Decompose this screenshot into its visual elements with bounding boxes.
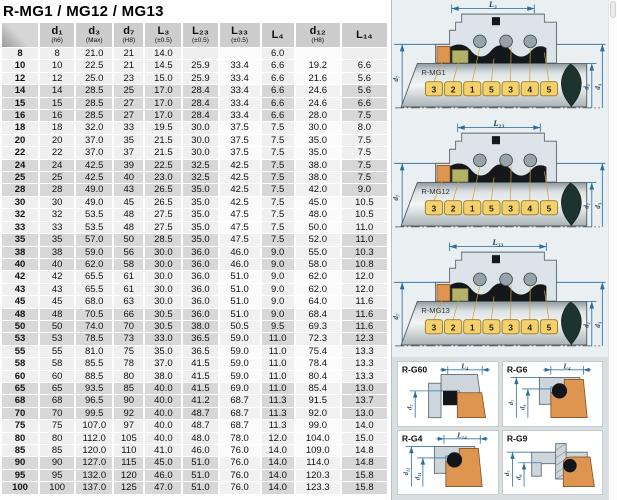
table-cell: 7.5 bbox=[342, 147, 387, 158]
table-cell: 41.0 bbox=[145, 445, 181, 456]
card-r-g6: R-G6 L₄ d₇ d₆ bbox=[502, 361, 604, 427]
part-number: 1 bbox=[470, 203, 475, 213]
table-cell: 17.0 bbox=[145, 98, 181, 109]
table-cell: 41.5 bbox=[183, 383, 217, 394]
table-cell: 115 bbox=[114, 457, 143, 468]
table-cell: 33.4 bbox=[220, 98, 260, 109]
table-cell: 35.0 bbox=[183, 222, 217, 233]
table-cell: 41.5 bbox=[183, 371, 217, 382]
dim-d1-label: d₁ bbox=[583, 322, 591, 328]
card-label: R-G6 bbox=[506, 365, 527, 375]
table-cell: 30.0 bbox=[145, 259, 181, 270]
table-cell: 78.4 bbox=[296, 358, 340, 369]
table-cell: 11.6 bbox=[342, 321, 387, 332]
table-cell: 13.0 bbox=[342, 383, 387, 394]
card-label: R-G9 bbox=[506, 433, 527, 443]
table-row: 585885.57837.041.559.011.078.413.3 bbox=[2, 358, 387, 369]
table-cell: 120.3 bbox=[296, 470, 340, 481]
diagram-r-mg1: d₇ L₃ R-MG1 3 2 1 5 3 4 5 d₁ d₃ bbox=[392, 0, 608, 119]
table-cell: 53.5 bbox=[76, 209, 112, 220]
o-ring bbox=[447, 452, 462, 467]
table-row: 8821.02114.06.0 bbox=[2, 48, 387, 59]
table-cell: 11.3 bbox=[262, 408, 294, 419]
dim-d1-label: d₁ bbox=[583, 84, 591, 90]
table-cell: 28 bbox=[40, 184, 74, 195]
table-cell: 33.4 bbox=[220, 85, 260, 96]
table-cell: 9.0 bbox=[262, 271, 294, 282]
dim-L14-label: L₁₄ bbox=[456, 431, 467, 439]
table-cell: 12 bbox=[2, 73, 38, 84]
table-cell: 12.0 bbox=[342, 284, 387, 295]
table-cell: 45 bbox=[114, 197, 143, 208]
table-cell: 76.0 bbox=[220, 457, 260, 468]
table-row: 323253.54827.535.047.57.548.010.5 bbox=[2, 209, 387, 220]
table-cell: 24.6 bbox=[296, 98, 340, 109]
table-cell: 65 bbox=[40, 383, 74, 394]
table-cell: 95 bbox=[40, 470, 74, 481]
table-cell: 25 bbox=[40, 172, 74, 183]
table-cell: 48.0 bbox=[183, 433, 217, 444]
table-cell: 59.0 bbox=[220, 371, 260, 382]
diagram-r-mg12: d₇ L₂₃ R-MG12 3 2 1 5 3 4 5 d₁ d₃ bbox=[392, 119, 608, 238]
table-cell: 14.0 bbox=[262, 482, 294, 493]
table-cell: 97 bbox=[114, 420, 143, 431]
table-cell: 37 bbox=[114, 147, 143, 158]
table-cell: 8 bbox=[40, 48, 74, 59]
header-d1: d₁(h6) bbox=[40, 23, 74, 47]
table-cell: 68.7 bbox=[220, 395, 260, 406]
table-cell: 30.0 bbox=[183, 122, 217, 133]
table-row: 656593.58540.041.569.011.085.413.0 bbox=[2, 383, 387, 394]
table-cell: 49.0 bbox=[76, 184, 112, 195]
seal-face-part bbox=[452, 169, 468, 182]
table-cell: 53.5 bbox=[76, 222, 112, 233]
table-cell: 28.5 bbox=[76, 110, 112, 121]
table-cell: 7.5 bbox=[262, 234, 294, 245]
dim-d12-label: d₁₂ bbox=[403, 467, 410, 475]
table-cell: 21.5 bbox=[145, 147, 181, 158]
table-cell: 80 bbox=[2, 433, 38, 444]
table-cell: 11.0 bbox=[262, 346, 294, 357]
header-L4: L₄ bbox=[262, 23, 294, 47]
table-cell: 40 bbox=[40, 259, 74, 270]
table-cell: 27.5 bbox=[145, 222, 181, 233]
table-cell: 66 bbox=[114, 309, 143, 320]
table-cell: 47.5 bbox=[220, 234, 260, 245]
card-r-g4: R-G4 L₁₄ d₁₂ d₁₁ bbox=[397, 430, 499, 496]
table-cell: 55 bbox=[40, 346, 74, 357]
set-screw bbox=[492, 255, 500, 263]
table-cell: 14.5 bbox=[145, 60, 181, 71]
table-cell: 58 bbox=[2, 358, 38, 369]
table-cell: 90 bbox=[2, 457, 38, 468]
part-number: 1 bbox=[470, 84, 475, 94]
dim-length-label: L₃₃ bbox=[491, 238, 503, 247]
spring bbox=[524, 154, 537, 167]
table-cell: 35.0 bbox=[183, 234, 217, 245]
part-number: 5 bbox=[547, 203, 552, 213]
table-row: 8080112.010540.048.078.012.0104.015.0 bbox=[2, 433, 387, 444]
table-cell: 6.6 bbox=[262, 60, 294, 71]
table-cell: 21.0 bbox=[76, 48, 112, 59]
table-cell bbox=[296, 48, 340, 59]
table-cell: 17.0 bbox=[145, 110, 181, 121]
table-cell: 11.3 bbox=[262, 395, 294, 406]
table-cell: 28 bbox=[2, 184, 38, 195]
table-cell: 51.0 bbox=[220, 271, 260, 282]
table-cell: 65.5 bbox=[76, 284, 112, 295]
table-cell: 7.5 bbox=[262, 184, 294, 195]
table-cell: 17.0 bbox=[145, 85, 181, 96]
table-cell: 10.8 bbox=[342, 259, 387, 270]
table-cell: 70 bbox=[40, 408, 74, 419]
table-cell: 32.5 bbox=[183, 160, 217, 171]
table-cell: 40.0 bbox=[145, 408, 181, 419]
table-cell: 55 bbox=[2, 346, 38, 357]
table-cell: 40 bbox=[114, 172, 143, 183]
diagram-label: R-MG12 bbox=[421, 187, 450, 196]
table-cell: 12.0 bbox=[262, 433, 294, 444]
table-cell: 22 bbox=[2, 147, 38, 158]
table-cell: 64.0 bbox=[296, 296, 340, 307]
table-cell: 32 bbox=[2, 209, 38, 220]
table-cell: 65 bbox=[2, 383, 38, 394]
table-cell: 85 bbox=[40, 445, 74, 456]
table-cell: 14.0 bbox=[342, 420, 387, 431]
header-L14: L₁₄ bbox=[342, 23, 387, 47]
table-row: 555581.07535.036.559.011.075.413.3 bbox=[2, 346, 387, 357]
table-cell: 35.0 bbox=[183, 209, 217, 220]
table-cell: 22.5 bbox=[145, 160, 181, 171]
table-row: 535378.57333.036.559.011.072.312.3 bbox=[2, 333, 387, 344]
table-row: 9090127.011545.051.076.014.0114.014.8 bbox=[2, 457, 387, 468]
table-cell: 68 bbox=[40, 395, 74, 406]
table-cell: 28.4 bbox=[183, 85, 217, 96]
table-cell: 11.6 bbox=[342, 296, 387, 307]
table-cell: 14.0 bbox=[262, 470, 294, 481]
table-cell bbox=[342, 48, 387, 59]
header-corner-cell bbox=[2, 23, 38, 47]
table-cell: 75.4 bbox=[296, 346, 340, 357]
table-cell: 45 bbox=[2, 296, 38, 307]
spring bbox=[524, 273, 537, 286]
table-cell: 35.0 bbox=[145, 346, 181, 357]
table-cell: 30.0 bbox=[183, 135, 217, 146]
table-cell: 58 bbox=[40, 358, 74, 369]
table-cell: 24 bbox=[2, 160, 38, 171]
table-cell: 14.8 bbox=[342, 445, 387, 456]
table-cell: 100 bbox=[40, 482, 74, 493]
table-cell: 28.4 bbox=[183, 110, 217, 121]
table-cell: 9.0 bbox=[262, 309, 294, 320]
part-number: 5 bbox=[547, 322, 552, 332]
part-number: 2 bbox=[451, 84, 456, 94]
dim-d6-label: d₆ bbox=[515, 473, 522, 479]
table-cell: 120 bbox=[114, 470, 143, 481]
table-row: 202037.03521.530.037.57.535.07.5 bbox=[2, 135, 387, 146]
spring bbox=[473, 154, 486, 167]
table-cell: 65.5 bbox=[76, 271, 112, 282]
table-row: 161628.52717.028.433.46.628.07.5 bbox=[2, 110, 387, 121]
table-cell: 32.5 bbox=[183, 172, 217, 183]
table-cell: 28.5 bbox=[76, 85, 112, 96]
table-cell: 11.0 bbox=[262, 383, 294, 394]
seal-face-part bbox=[452, 288, 468, 301]
table-cell: 25 bbox=[114, 85, 143, 96]
table-cell: 37.5 bbox=[220, 135, 260, 146]
table-cell: 62.0 bbox=[76, 259, 112, 270]
o-ring bbox=[551, 383, 566, 398]
r-mg1-drawing: d₇ L₃ R-MG1 3 2 1 5 3 4 5 d₁ d₃ bbox=[392, 0, 608, 119]
table-cell: 33 bbox=[2, 222, 38, 233]
table-cell: 38.0 bbox=[296, 160, 340, 171]
table-cell: 38 bbox=[40, 247, 74, 258]
table-cell: 37.0 bbox=[76, 147, 112, 158]
spring bbox=[473, 35, 486, 48]
table-cell: 6.6 bbox=[342, 60, 387, 71]
table-cell: 78.5 bbox=[76, 333, 112, 344]
table-cell: 51.0 bbox=[220, 296, 260, 307]
table-cell: 114.0 bbox=[296, 457, 340, 468]
table-cell: 99.0 bbox=[296, 420, 340, 431]
table-cell: 16 bbox=[2, 110, 38, 121]
dim-d3-label: d₃ bbox=[594, 321, 602, 328]
table-cell: 9.0 bbox=[262, 259, 294, 270]
dim-L4-label: L₄ bbox=[460, 362, 469, 370]
table-cell: 33.0 bbox=[145, 333, 181, 344]
table-cell: 74.0 bbox=[76, 321, 112, 332]
table-cell: 35.0 bbox=[296, 135, 340, 146]
table-cell: 9.0 bbox=[262, 247, 294, 258]
table-cell: 37.0 bbox=[145, 358, 181, 369]
table-cell: 47.5 bbox=[220, 222, 260, 233]
diagram-label: R-MG13 bbox=[421, 306, 450, 315]
table-cell: 14 bbox=[40, 85, 74, 96]
table-cell: 100 bbox=[2, 482, 38, 493]
table-cell: 28.4 bbox=[183, 98, 217, 109]
table-cell: 6.6 bbox=[262, 85, 294, 96]
table-cell: 5.6 bbox=[342, 85, 387, 96]
table-cell: 46.0 bbox=[220, 259, 260, 270]
seal-section-diagrams: d₇ L₃ R-MG1 3 2 1 5 3 4 5 d₁ d₃ d₇ L₂₃ bbox=[392, 0, 608, 357]
table-cell: 95 bbox=[2, 470, 38, 481]
table-cell: 76.0 bbox=[220, 470, 260, 481]
table-cell: 24.6 bbox=[296, 85, 340, 96]
table-cell: 27 bbox=[114, 98, 143, 109]
table-cell: 7.5 bbox=[342, 160, 387, 171]
table-cell: 30.0 bbox=[145, 296, 181, 307]
table-cell: 38.0 bbox=[296, 172, 340, 183]
dim-d7-label: d₇ bbox=[392, 194, 400, 201]
table-cell: 15.0 bbox=[342, 433, 387, 444]
table-cell: 7.5 bbox=[262, 222, 294, 233]
table-cell: 10.5 bbox=[342, 209, 387, 220]
table-cell: 69.3 bbox=[296, 321, 340, 332]
scrollbar-thumb[interactable] bbox=[610, 1, 616, 18]
table-cell: 40.0 bbox=[145, 420, 181, 431]
table-cell: 78 bbox=[114, 358, 143, 369]
table-cell: 9.0 bbox=[262, 296, 294, 307]
table-cell: 7.5 bbox=[262, 209, 294, 220]
table-header-row: d₁(h6) d₃(Max) d₇(H8) L₃(±0.5) L₂₃(±0.5)… bbox=[2, 23, 387, 47]
table-cell: 80.4 bbox=[296, 371, 340, 382]
dimension-table-panel: R-MG1 / MG12 / MG13 d₁(h6) d₃(Max) d₇(H8… bbox=[0, 0, 391, 500]
table-cell: 85 bbox=[114, 383, 143, 394]
table-row: 7575107.09740.048.768.711.399.014.0 bbox=[2, 420, 387, 431]
table-cell: 13.3 bbox=[342, 358, 387, 369]
table-cell: 7.5 bbox=[342, 172, 387, 183]
table-cell: 68.4 bbox=[296, 309, 340, 320]
table-cell: 61 bbox=[114, 271, 143, 282]
table-row: 303049.04526.535.042.57.545.010.5 bbox=[2, 197, 387, 208]
table-cell: 125 bbox=[114, 482, 143, 493]
table-cell: 20 bbox=[40, 135, 74, 146]
table-cell: 14.0 bbox=[262, 457, 294, 468]
table-cell: 60 bbox=[2, 371, 38, 382]
header-d3: d₃(Max) bbox=[76, 23, 112, 47]
table-cell: 30.5 bbox=[145, 321, 181, 332]
table-cell: 56 bbox=[114, 247, 143, 258]
dim-d7-label: d₇ bbox=[392, 313, 400, 320]
part-number: 3 bbox=[432, 322, 437, 332]
table-cell: 30.5 bbox=[145, 309, 181, 320]
table-cell: 14.0 bbox=[145, 48, 181, 59]
table-cell: 50 bbox=[114, 234, 143, 245]
table-cell: 48.7 bbox=[183, 420, 217, 431]
table-cell: 25.9 bbox=[183, 60, 217, 71]
table-cell: 62.0 bbox=[296, 271, 340, 282]
table-cell: 48 bbox=[2, 309, 38, 320]
table-cell: 40.0 bbox=[145, 433, 181, 444]
table-row: 101022.52114.525.933.46.619.26.6 bbox=[2, 60, 387, 71]
table-row: 100100137.012547.051.076.014.0123.315.8 bbox=[2, 482, 387, 493]
table-cell: 38 bbox=[2, 247, 38, 258]
table-cell: 46.0 bbox=[220, 247, 260, 258]
table-cell: 32.0 bbox=[76, 122, 112, 133]
table-cell: 46.0 bbox=[183, 445, 217, 456]
table-cell: 6.6 bbox=[262, 73, 294, 84]
table-row: 333353.54827.535.047.57.550.011.0 bbox=[2, 222, 387, 233]
table-cell: 6.6 bbox=[262, 110, 294, 121]
r-g6-drawing: R-G6 L₄ d₇ d₆ bbox=[503, 362, 603, 426]
table-cell: 12 bbox=[40, 73, 74, 84]
table-cell: 30.0 bbox=[145, 284, 181, 295]
header-d12: d₁₂(H8) bbox=[296, 23, 340, 47]
table-row: 404062.05830.036.046.09.058.010.8 bbox=[2, 259, 387, 270]
table-cell: 59.0 bbox=[76, 247, 112, 258]
table-cell: 42.0 bbox=[296, 184, 340, 195]
table-cell: 12.0 bbox=[342, 271, 387, 282]
table-cell: 52.0 bbox=[296, 234, 340, 245]
table-row: 707099.59240.048.768.711.392.013.0 bbox=[2, 408, 387, 419]
dim-L4-label: L₄ bbox=[562, 362, 571, 370]
table-cell: 11.0 bbox=[342, 222, 387, 233]
table-cell: 58 bbox=[114, 259, 143, 270]
table-row: 383859.05630.036.046.09.055.010.3 bbox=[2, 247, 387, 258]
table-cell: 127.0 bbox=[76, 457, 112, 468]
table-cell: 7.5 bbox=[262, 160, 294, 171]
table-cell: 90 bbox=[114, 395, 143, 406]
table-cell: 21 bbox=[114, 60, 143, 71]
set-screw bbox=[492, 17, 500, 25]
table-cell: 36.5 bbox=[183, 346, 217, 357]
table-cell: 85.4 bbox=[296, 383, 340, 394]
table-cell: 92 bbox=[114, 408, 143, 419]
table-cell: 42.5 bbox=[76, 160, 112, 171]
table-cell: 7.5 bbox=[342, 110, 387, 121]
table-cell: 6.6 bbox=[342, 98, 387, 109]
table-cell: 51.0 bbox=[183, 482, 217, 493]
table-cell: 40.0 bbox=[145, 395, 181, 406]
table-cell: 75 bbox=[2, 420, 38, 431]
table-cell: 73 bbox=[114, 333, 143, 344]
page-title: R-MG1 / MG12 / MG13 bbox=[0, 0, 391, 22]
table-cell: 24 bbox=[40, 160, 74, 171]
table-cell: 30 bbox=[2, 197, 38, 208]
table-cell: 35.0 bbox=[183, 197, 217, 208]
table-cell: 26.5 bbox=[145, 184, 181, 195]
scrollbar[interactable] bbox=[608, 0, 617, 500]
table-cell: 99.5 bbox=[76, 408, 112, 419]
table-cell: 15 bbox=[40, 98, 74, 109]
table-cell: 27.5 bbox=[145, 209, 181, 220]
table-cell: 85 bbox=[2, 445, 38, 456]
table-cell: 43 bbox=[40, 284, 74, 295]
table-cell: 28.5 bbox=[76, 98, 112, 109]
table-cell: 19.5 bbox=[145, 122, 181, 133]
table-cell: 9.0 bbox=[262, 284, 294, 295]
table-cell: 21.5 bbox=[145, 135, 181, 146]
diagram-r-mg13: d₇ L₃₃ R-MG13 3 2 1 5 3 4 5 d₁ d₃ bbox=[392, 238, 608, 357]
seat-part bbox=[437, 284, 450, 301]
table-cell: 22.5 bbox=[76, 60, 112, 71]
table-cell: 123.3 bbox=[296, 482, 340, 493]
table-cell: 36.0 bbox=[183, 296, 217, 307]
table-cell: 48.7 bbox=[183, 408, 217, 419]
table-cell: 38.0 bbox=[183, 321, 217, 332]
spring bbox=[473, 273, 486, 286]
table-cell: 42 bbox=[2, 271, 38, 282]
table-cell: 33.4 bbox=[220, 60, 260, 71]
spring bbox=[500, 154, 513, 167]
table-cell: 92.0 bbox=[296, 408, 340, 419]
card-r-g9: R-G9 d₇ d₆ bbox=[502, 430, 604, 496]
part-number: 5 bbox=[547, 84, 552, 94]
table-row: 606088.58038.041.559.011.080.413.3 bbox=[2, 371, 387, 382]
table-cell: 76.0 bbox=[220, 482, 260, 493]
table-row: 282849.04326.535.042.57.542.09.0 bbox=[2, 184, 387, 195]
table-cell: 96.5 bbox=[76, 395, 112, 406]
table-cell: 18 bbox=[2, 122, 38, 133]
table-cell: 30.0 bbox=[145, 247, 181, 258]
table-cell: 53 bbox=[40, 333, 74, 344]
table-cell: 75 bbox=[114, 346, 143, 357]
table-cell: 80 bbox=[114, 371, 143, 382]
table-cell: 68.0 bbox=[76, 296, 112, 307]
part-number: 5 bbox=[489, 84, 494, 94]
table-cell: 58.0 bbox=[296, 259, 340, 270]
table-cell: 46.0 bbox=[145, 470, 181, 481]
table-row: 434365.56130.036.051.09.062.012.0 bbox=[2, 284, 387, 295]
table-cell: 70.5 bbox=[76, 309, 112, 320]
table-cell: 59.0 bbox=[220, 346, 260, 357]
table-cell: 35 bbox=[40, 234, 74, 245]
spring bbox=[500, 35, 513, 48]
table-cell: 80 bbox=[40, 433, 74, 444]
table-cell: 39 bbox=[114, 160, 143, 171]
table-cell: 14 bbox=[2, 85, 38, 96]
table-cell: 30.0 bbox=[183, 147, 217, 158]
